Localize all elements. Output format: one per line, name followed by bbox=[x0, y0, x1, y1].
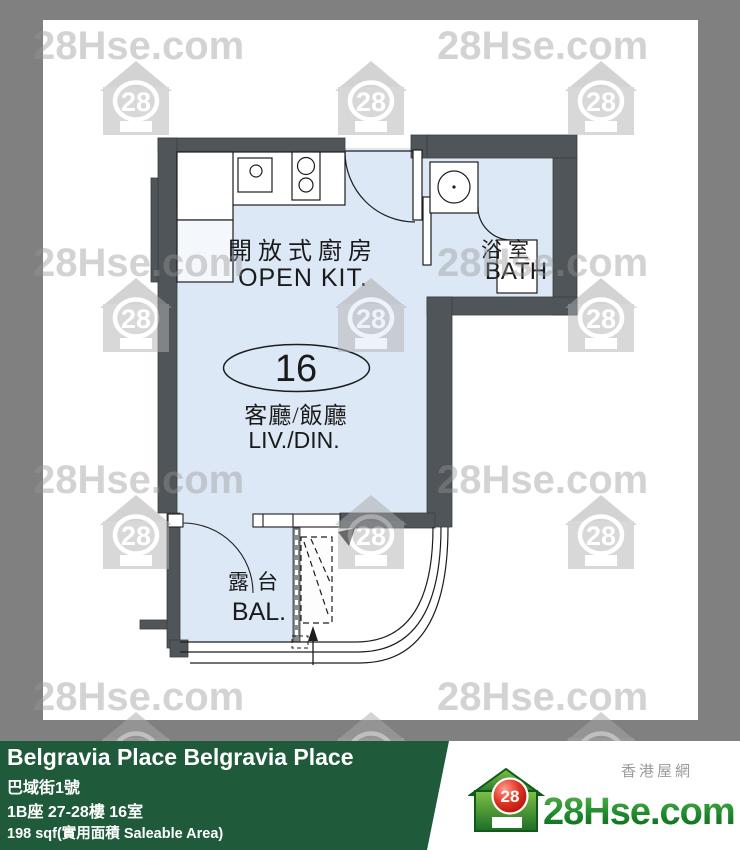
floor-plan: 16 開放式廚房 OPEN KIT. 浴室 BATH 客廳/飯廳 LIV./DI… bbox=[135, 130, 610, 715]
watermark-house-icon: 28 bbox=[565, 61, 637, 135]
logo-site-text: 28Hse.com bbox=[543, 791, 735, 833]
badge-number: 28 bbox=[501, 787, 520, 806]
watermark-text: 28Hse.com bbox=[437, 26, 648, 66]
28hse-logo[interactable]: 28 28Hse.com 香港屋網 bbox=[468, 755, 738, 850]
balcony-platform bbox=[292, 528, 355, 665]
property-info-panel: Belgravia Place Belgravia Place 巴域街1號 1B… bbox=[0, 741, 455, 850]
logo-tagline: 香港屋網 bbox=[621, 763, 693, 780]
footer-bar: Belgravia Place Belgravia Place 巴域街1號 1B… bbox=[0, 741, 740, 850]
unit-number-label: 16 bbox=[275, 348, 317, 390]
property-area: 198 sqf(實用面積 Saleable Area) bbox=[7, 822, 223, 843]
frame-top bbox=[0, 0, 740, 20]
living-label-en: LIV./DIN. bbox=[248, 427, 339, 453]
property-title: Belgravia Place Belgravia Place bbox=[7, 744, 354, 771]
kitchen-label-zh: 開放式廚房 bbox=[228, 238, 378, 265]
stove bbox=[292, 152, 320, 200]
svg-text:28: 28 bbox=[121, 87, 151, 117]
balcony-label-zh: 露台 bbox=[228, 570, 286, 594]
property-address: 巴域街1號 bbox=[7, 774, 80, 798]
sink bbox=[238, 158, 272, 192]
frame-bottom bbox=[0, 720, 740, 741]
screenshot-root: 16 開放式廚房 OPEN KIT. 浴室 BATH 客廳/飯廳 LIV./DI… bbox=[0, 0, 740, 850]
svg-text:28: 28 bbox=[586, 87, 616, 117]
bath-label-en: BATH bbox=[485, 258, 547, 285]
property-unit: 1B座 27-28樓 16室 bbox=[7, 798, 143, 822]
svg-text:28: 28 bbox=[356, 87, 386, 117]
frame-right bbox=[698, 20, 740, 741]
house-icon: 28 bbox=[470, 769, 542, 831]
frame-left bbox=[0, 20, 43, 741]
watermark-text: 28Hse.com bbox=[33, 26, 244, 66]
watermark-house-icon: 28 bbox=[335, 61, 407, 135]
drain-marker bbox=[338, 528, 355, 546]
kitchen-label-en: OPEN KIT. bbox=[238, 264, 368, 292]
balcony-label-en: BAL. bbox=[232, 598, 286, 626]
living-label-zh: 客廳/飯廳 bbox=[244, 403, 347, 428]
watermark-house-icon: 28 bbox=[100, 61, 172, 135]
